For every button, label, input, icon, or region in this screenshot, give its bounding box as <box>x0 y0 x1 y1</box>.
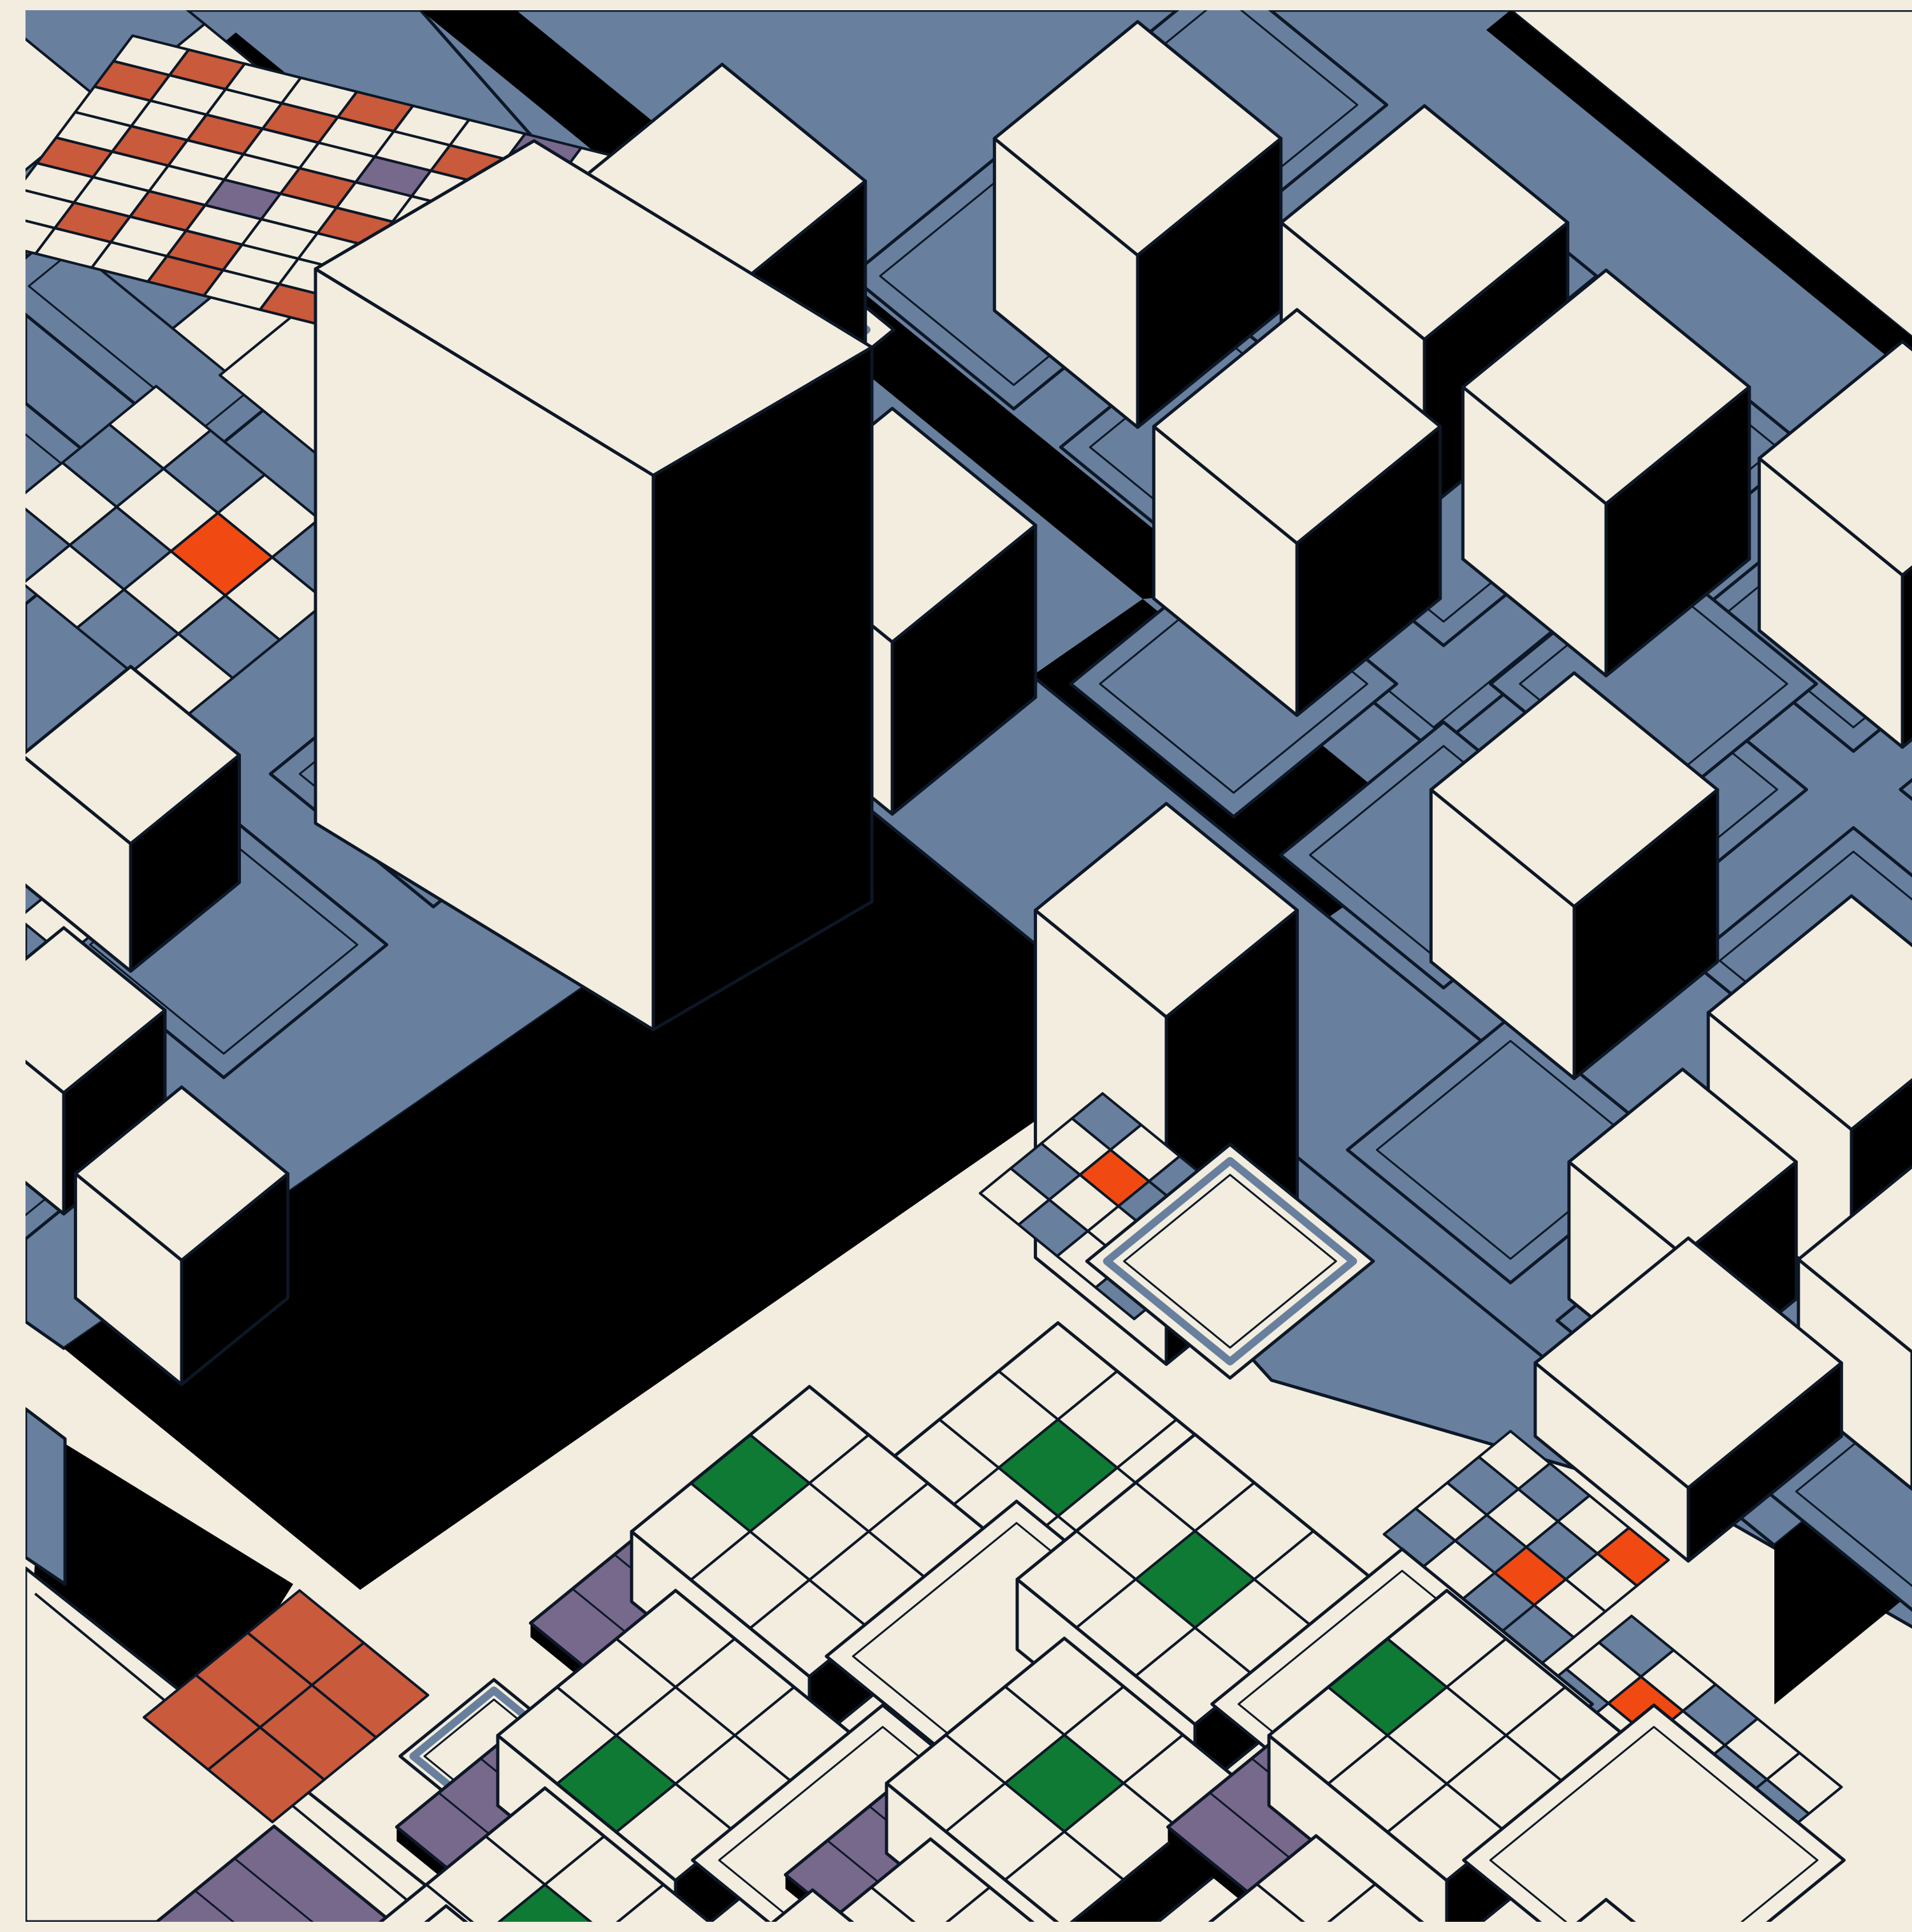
left-blue-sliver <box>25 1409 65 1584</box>
generative-artwork: Isometric generative cityscape with tile… <box>25 10 1912 1922</box>
scene-svg <box>25 10 1912 1922</box>
artwork-canvas <box>25 10 1912 1922</box>
